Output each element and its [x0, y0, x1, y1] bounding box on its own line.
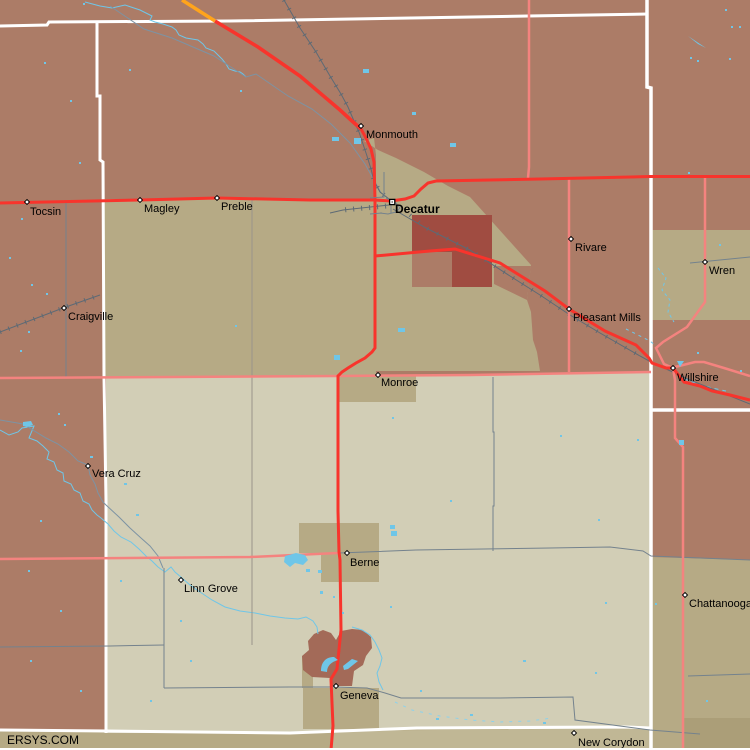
- svg-text:Magley: Magley: [144, 203, 180, 215]
- svg-text:Berne: Berne: [350, 557, 379, 569]
- svg-text:Craigville: Craigville: [68, 311, 113, 323]
- svg-text:Vera Cruz: Vera Cruz: [92, 468, 141, 480]
- svg-text:Chattanooga: Chattanooga: [689, 598, 750, 610]
- svg-text:Monroe: Monroe: [381, 377, 418, 389]
- svg-text:Preble: Preble: [221, 201, 253, 213]
- svg-text:Monmouth: Monmouth: [366, 129, 418, 141]
- svg-text:Willshire: Willshire: [677, 372, 719, 384]
- svg-text:New Corydon: New Corydon: [578, 737, 645, 749]
- svg-text:ERSYS.COM: ERSYS.COM: [7, 733, 79, 747]
- svg-text:Decatur: Decatur: [395, 202, 440, 216]
- svg-text:Tocsin: Tocsin: [30, 206, 61, 218]
- svg-text:Rivare: Rivare: [575, 242, 607, 254]
- svg-text:Linn Grove: Linn Grove: [184, 583, 238, 595]
- svg-text:Wren: Wren: [709, 265, 735, 277]
- svg-text:Geneva: Geneva: [340, 690, 379, 702]
- svg-text:Pleasant Mills: Pleasant Mills: [573, 312, 641, 324]
